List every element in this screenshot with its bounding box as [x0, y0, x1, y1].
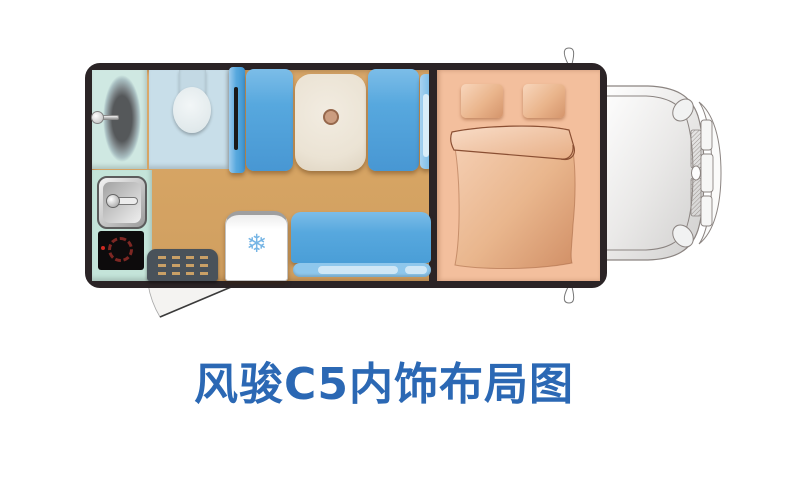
stove — [98, 231, 144, 270]
floorplan-canvas: ❄ 风骏C5内饰布局图 — [0, 0, 800, 483]
stove-burner — [108, 237, 133, 262]
sofa-base — [293, 263, 431, 277]
sofa — [291, 212, 431, 263]
snowflake-icon: ❄ — [246, 231, 267, 256]
wardrobe-panel — [229, 67, 245, 173]
wardrobe-slit — [234, 87, 238, 150]
table-pedestal — [323, 109, 339, 125]
cab-badge — [692, 166, 701, 180]
cab-hood-segment — [701, 154, 713, 192]
cab-cowl-hatch-top — [691, 130, 701, 168]
stove-igniter-icon — [101, 246, 105, 250]
rv-body: ❄ — [85, 63, 607, 288]
mat-pattern — [158, 264, 209, 267]
shower-room — [92, 70, 147, 169]
side-mirror-bottom-icon — [564, 287, 573, 303]
pillow-left — [461, 84, 503, 118]
side-mirror-top-icon — [564, 48, 573, 64]
dinette-table — [295, 74, 366, 171]
mat-pattern — [158, 256, 209, 259]
refrigerator: ❄ — [225, 211, 288, 281]
kitchen-sink — [97, 176, 147, 229]
cab-cowl-hatch-bottom — [691, 178, 701, 216]
mat-pattern — [158, 272, 209, 275]
sofa-cushion — [405, 266, 427, 274]
toilet-room — [149, 70, 229, 169]
sink-knob-icon — [106, 194, 120, 208]
sofa-cushion — [318, 266, 398, 274]
cab-hood-segment — [701, 120, 712, 150]
entry-mat — [147, 249, 218, 281]
duvet — [442, 120, 594, 272]
kitchen-counter — [92, 170, 152, 281]
dinette-seat-rear — [368, 69, 419, 171]
shower-knob-icon — [91, 111, 104, 124]
cab-hood-segment — [701, 196, 712, 226]
bedroom — [437, 70, 600, 281]
pillow-right — [523, 84, 565, 118]
dinette-seat-front — [246, 69, 293, 171]
page-title: 风骏C5内饰布局图 — [0, 348, 768, 412]
toilet — [173, 87, 211, 133]
